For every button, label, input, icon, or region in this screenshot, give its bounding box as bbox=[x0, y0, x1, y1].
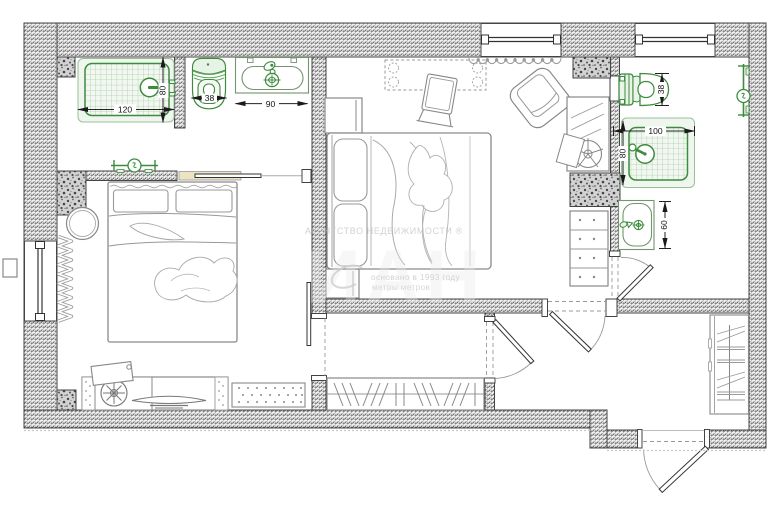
svg-text:90: 90 bbox=[266, 99, 276, 109]
svg-text:метры метров: метры метров bbox=[372, 283, 430, 292]
svg-text:80: 80 bbox=[158, 86, 168, 96]
svg-text:60: 60 bbox=[659, 220, 669, 230]
svg-text:38: 38 bbox=[205, 93, 215, 103]
svg-text:основано в 1993 году: основано в 1993 году bbox=[371, 273, 461, 282]
svg-text:120: 120 bbox=[118, 105, 132, 115]
svg-text:80: 80 bbox=[618, 149, 628, 159]
svg-text:100: 100 bbox=[648, 126, 662, 136]
svg-text:38: 38 bbox=[656, 85, 666, 95]
